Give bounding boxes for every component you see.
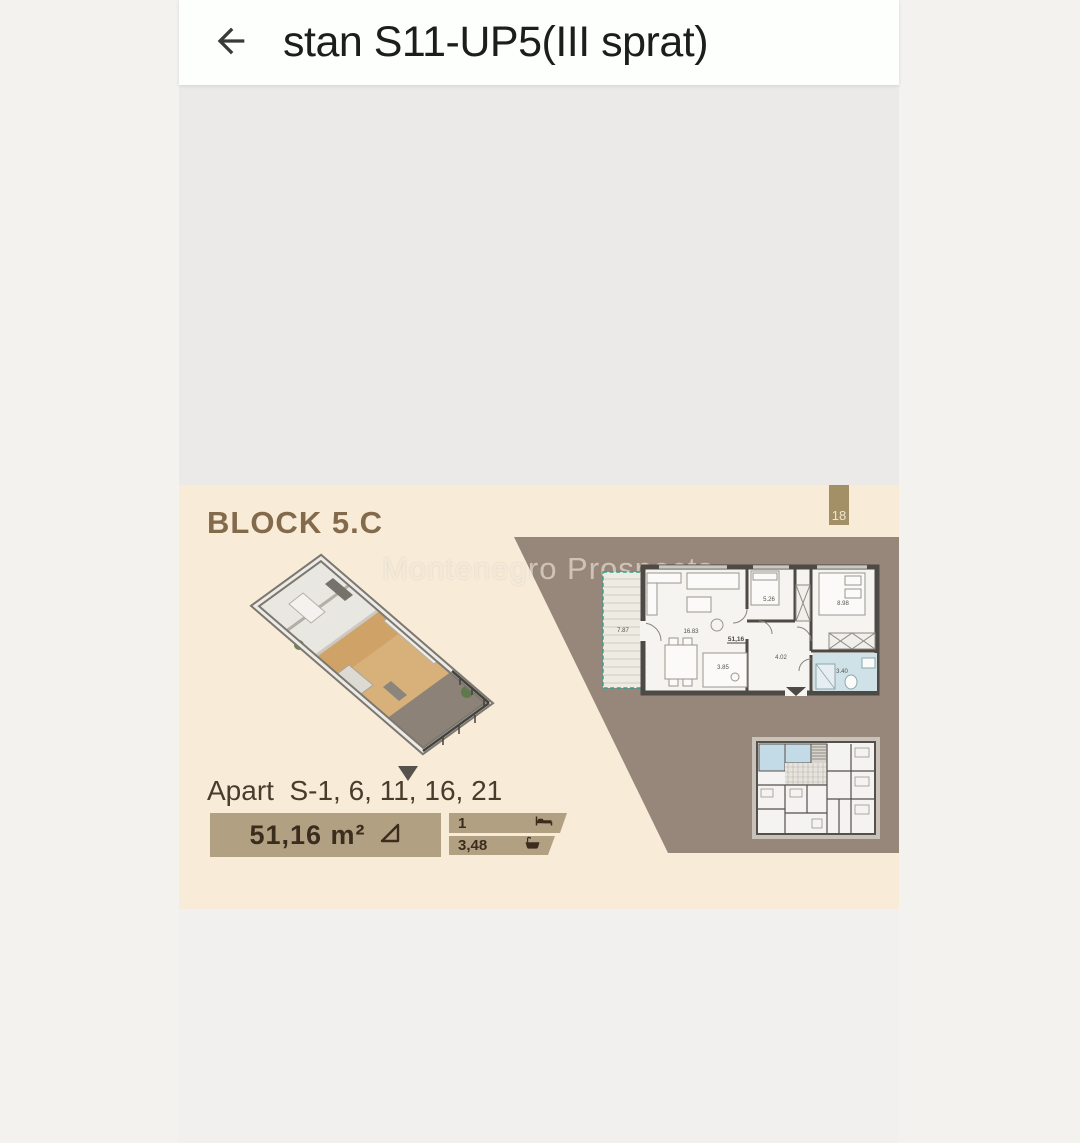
page-title: stan S11-UP5(III sprat) bbox=[283, 18, 708, 67]
back-button[interactable] bbox=[201, 13, 261, 73]
living-area-label: 16.83 bbox=[683, 629, 699, 635]
bedroom-count: 1 bbox=[458, 815, 466, 832]
apartment-2d-plan: 7.87 bbox=[599, 563, 881, 697]
kitchen-area-label: 3.85 bbox=[717, 665, 729, 671]
content-spacer-bottom bbox=[179, 909, 899, 1143]
apartment-units-label: Apart S-1, 6, 11, 16, 21 bbox=[207, 775, 502, 807]
floorplan-image[interactable]: Montenegro Prospects BLOCK 5.C 18 bbox=[179, 485, 899, 909]
stats-column: 1 3,48 bbox=[449, 813, 574, 858]
page-number-tab: 18 bbox=[829, 485, 849, 525]
arrow-left-icon bbox=[211, 21, 251, 64]
app-header: stan S11-UP5(III sprat) bbox=[179, 0, 899, 85]
block-title: BLOCK 5.C bbox=[207, 505, 383, 541]
floor-key-plan bbox=[752, 737, 880, 839]
bathroom-area: 3,48 bbox=[458, 837, 487, 854]
bed-icon bbox=[535, 814, 553, 833]
content-spacer-top bbox=[179, 85, 899, 485]
app-content: stan S11-UP5(III sprat) Montenegro Prosp… bbox=[179, 0, 899, 1143]
small-bedroom-area-label: 5.26 bbox=[763, 597, 775, 603]
bedroom-count-badge: 1 bbox=[449, 813, 567, 833]
set-square-triangle-icon bbox=[378, 821, 402, 850]
hall-area-label: 4.02 bbox=[775, 655, 787, 661]
plan-terrace: 7.87 bbox=[603, 572, 643, 688]
apartment-3d-render bbox=[241, 553, 496, 793]
bathtub-icon bbox=[524, 836, 541, 855]
terrace-area-label: 7.87 bbox=[617, 628, 629, 634]
bathroom-area-badge: 3,48 bbox=[449, 836, 555, 855]
area-value: 51,16 m² bbox=[249, 820, 365, 851]
area-badge: 51,16 m² bbox=[210, 813, 441, 857]
bedroom-area-label: 8.98 bbox=[837, 601, 849, 607]
total-area-label: 51,16 bbox=[728, 636, 745, 643]
page-background: stan S11-UP5(III sprat) Montenegro Prosp… bbox=[0, 0, 1080, 1143]
bathroom-area-label: 3.40 bbox=[836, 669, 848, 675]
